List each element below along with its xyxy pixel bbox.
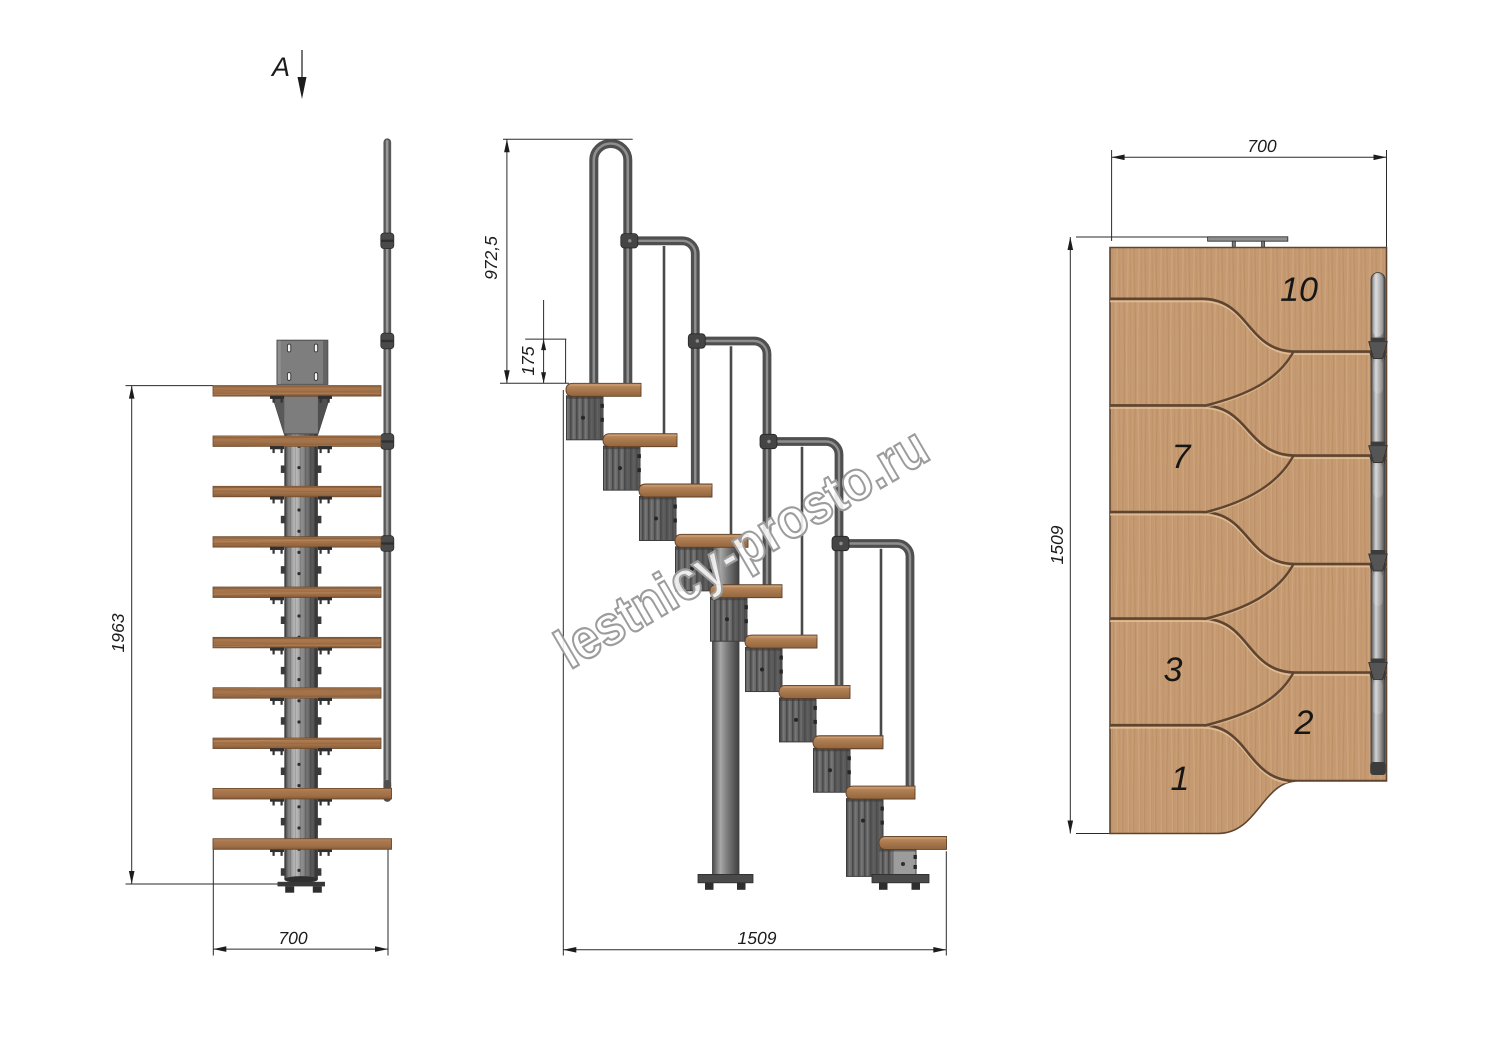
svg-text:3: 3 [1164, 651, 1183, 689]
svg-text:7: 7 [1172, 438, 1192, 476]
svg-text:1509: 1509 [1047, 525, 1067, 564]
svg-text:175: 175 [518, 346, 538, 375]
svg-text:972,5: 972,5 [481, 236, 501, 280]
svg-text:700: 700 [1247, 136, 1277, 156]
svg-text:1: 1 [1171, 760, 1190, 798]
svg-text:A: A [270, 52, 290, 82]
svg-text:700: 700 [278, 928, 308, 948]
svg-text:1509: 1509 [738, 928, 777, 948]
svg-text:10: 10 [1280, 271, 1318, 309]
svg-text:2: 2 [1294, 704, 1314, 742]
svg-text:1963: 1963 [108, 613, 128, 652]
